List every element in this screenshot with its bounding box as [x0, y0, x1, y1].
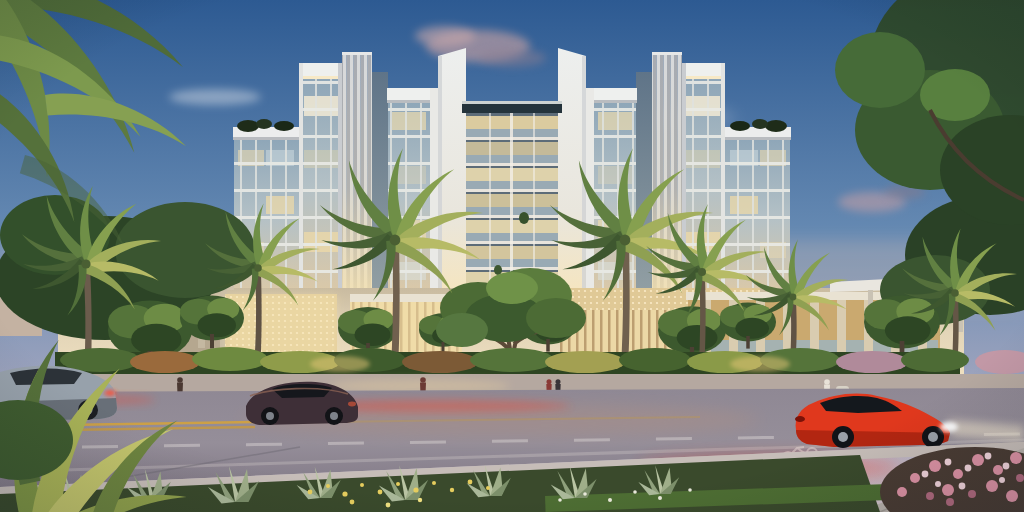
vignette-overlay: [0, 0, 1024, 512]
rendering-canvas: [0, 0, 1024, 512]
architectural-rendering: [0, 0, 1024, 512]
